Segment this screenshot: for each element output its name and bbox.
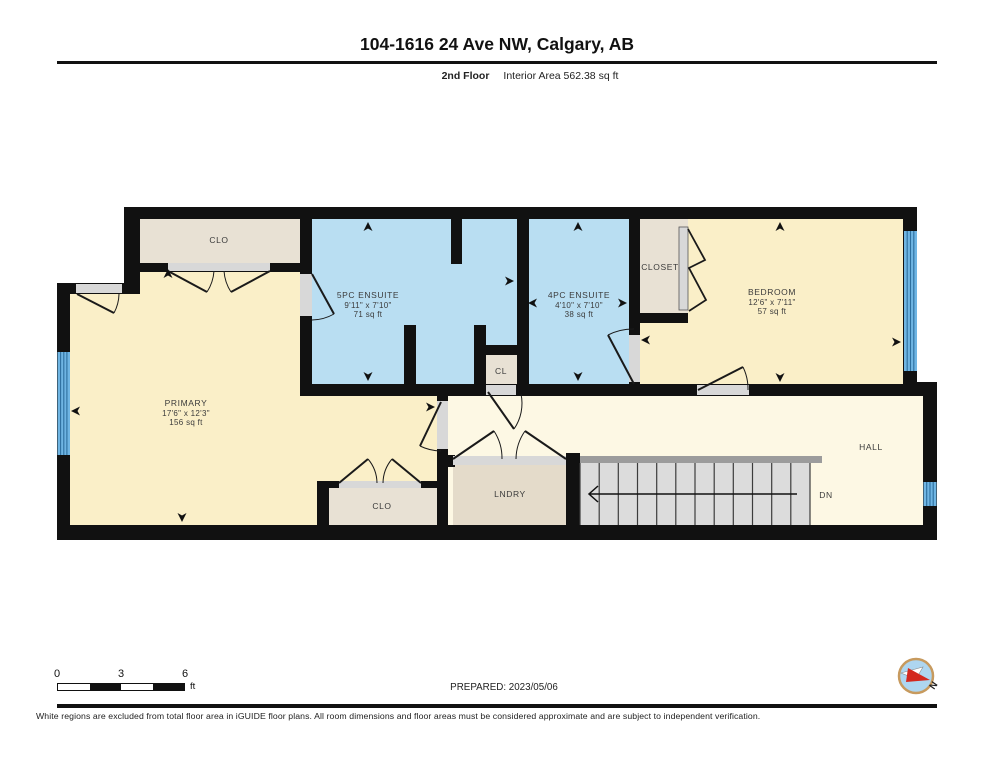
label-closet: CLOSET [641, 263, 679, 273]
bedroom-window [904, 231, 917, 371]
label-clo-upper: CLO [209, 236, 228, 246]
primary-window [58, 352, 71, 455]
prepared-date: PREPARED: 2023/05/06 [7, 682, 994, 693]
label-bedroom: BEDROOM 12'6" x 7'11" 57 sq ft [748, 288, 796, 317]
scale-tick-6: 6 [182, 668, 188, 680]
label-hall: HALL [859, 443, 883, 453]
label-4pc-ensuite: 4PC ENSUITE 4'10" x 7'10" 38 sq ft [548, 291, 610, 320]
label-primary: PRIMARY 17'6" x 12'3" 156 sq ft [162, 399, 210, 428]
scale-tick-0: 0 [54, 668, 60, 680]
scale-tick-3: 3 [118, 668, 124, 680]
label-cl: CL [495, 367, 507, 377]
label-clo-lower: CLO [372, 502, 391, 512]
label-lndry: LNDRY [494, 490, 526, 500]
stairs [580, 456, 822, 525]
closet-slider-panel [679, 227, 688, 310]
stairs-handrail [580, 456, 822, 463]
label-5pc-ensuite: 5PC ENSUITE 9'11" x 7'10" 71 sq ft [337, 291, 399, 320]
disclaimer-text: White regions are excluded from total fl… [36, 711, 760, 721]
footer-divider [57, 704, 937, 708]
floor-plan-page: 104-1616 24 Ave NW, Calgary, AB 2nd Floo… [0, 0, 994, 768]
floor-plan-drawing: N [0, 0, 994, 768]
label-stairs-dn: DN [819, 491, 832, 501]
hall-window [924, 482, 937, 506]
